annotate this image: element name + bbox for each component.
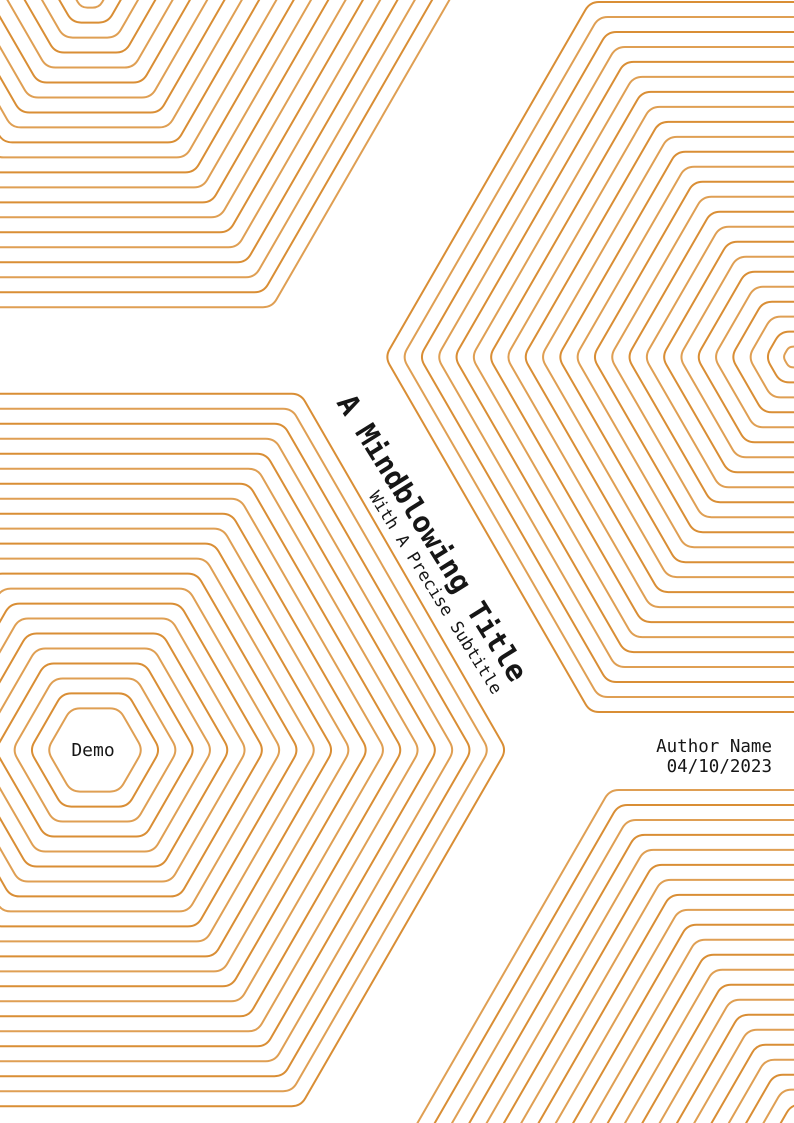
hexagon-ring — [0, 0, 417, 277]
hexagon-pattern-layer — [0, 0, 794, 1123]
hexagon-ring — [543, 137, 794, 577]
hexagon-pattern-bottom-right — [416, 790, 794, 1123]
author-name: Author Name — [520, 738, 772, 758]
hexagon-ring — [0, 0, 261, 142]
document-date: 04/10/2023 — [520, 758, 772, 778]
center-label: Demo — [43, 741, 143, 761]
hexagon-ring — [630, 212, 794, 502]
hexagon-ring — [606, 955, 794, 1123]
hexagon-ring — [0, 0, 348, 217]
hexagon-ring — [74, 0, 107, 8]
hexagon-ring — [0, 0, 365, 232]
hexagon-ring — [439, 47, 794, 667]
hexagon-ring — [416, 790, 794, 1123]
hexagon-ring — [0, 0, 192, 83]
hexagon-ring — [0, 0, 452, 307]
hexagon-ring — [675, 1015, 794, 1123]
author-block: Author Name 04/10/2023 — [520, 738, 772, 777]
hexagon-ring — [762, 1090, 794, 1123]
hexagon-ring — [595, 182, 794, 532]
hexagon-ring — [647, 227, 794, 488]
title-page: A Mindblowing Title With A Precise Subti… — [0, 0, 794, 1123]
hexagon-ring — [768, 332, 794, 383]
hexagon-ring — [57, 0, 123, 23]
hexagon-ring — [779, 1105, 794, 1123]
hexagon-ring — [491, 92, 794, 622]
hexagon-ring — [474, 77, 794, 637]
hexagon-ring — [664, 242, 794, 473]
hexagon-ring — [716, 287, 794, 428]
hexagon-ring — [589, 940, 794, 1123]
hexagon-ring — [692, 1030, 794, 1123]
hexagon-ring — [554, 910, 794, 1123]
hexagon-ring — [751, 317, 794, 398]
hexagon-ring — [784, 347, 794, 368]
hexagon-ring — [0, 0, 279, 157]
hexagon-pattern-top-left — [0, 0, 452, 307]
hexagon-ring — [0, 0, 296, 172]
hexagon-ring — [40, 0, 141, 38]
hexagon-ring — [468, 835, 794, 1123]
